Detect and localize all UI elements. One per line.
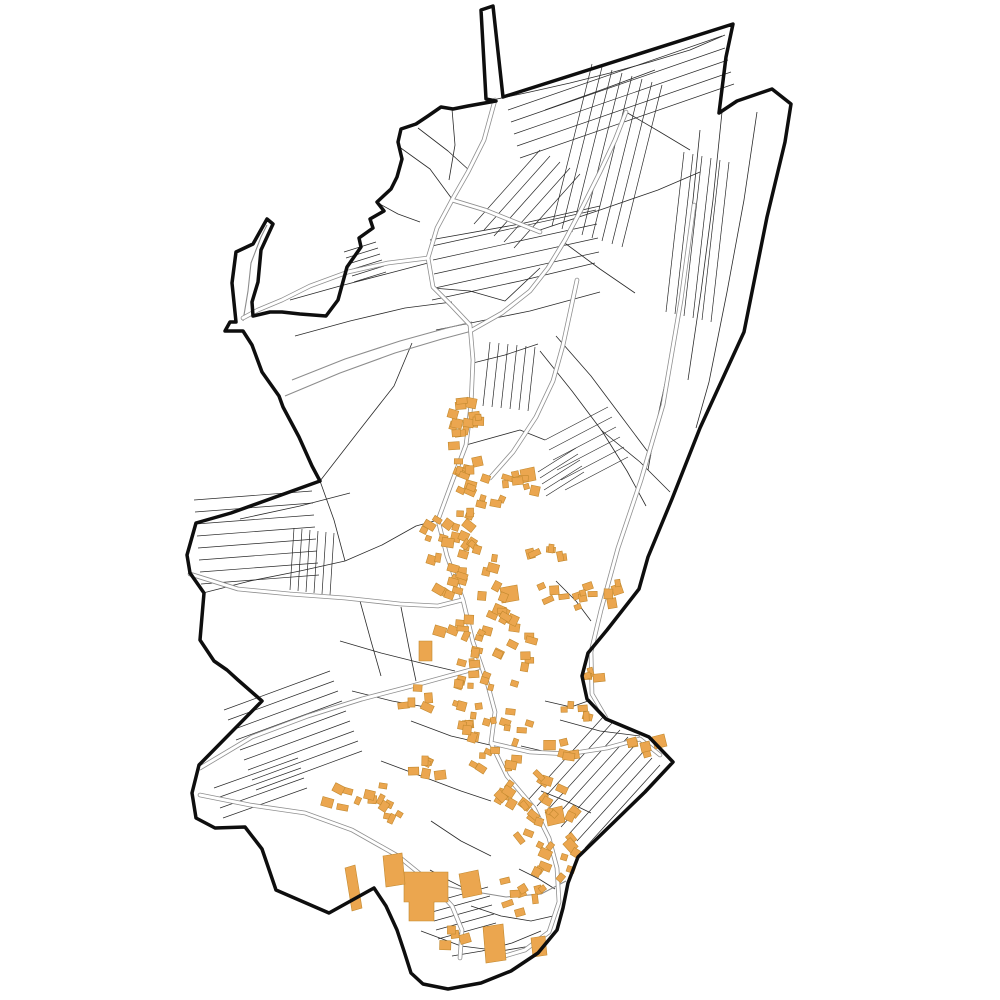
field-strip-line [582, 73, 622, 235]
building [548, 544, 554, 553]
field-strip-line [298, 529, 302, 591]
building [555, 784, 568, 795]
building [463, 418, 475, 428]
road-casing [190, 574, 462, 606]
building [529, 485, 540, 496]
field-strip-line [290, 528, 294, 590]
building [457, 626, 469, 632]
building [512, 477, 523, 486]
building [542, 595, 554, 604]
field-strip-line [194, 491, 312, 500]
field-strip-line [510, 345, 517, 409]
building [583, 712, 589, 722]
buildings-layer [321, 397, 667, 963]
building [413, 685, 422, 692]
building [479, 494, 486, 501]
building [447, 408, 459, 419]
field-strip-line [434, 238, 598, 274]
building [532, 894, 539, 904]
field-strip-line [240, 711, 346, 750]
field-strip-line [256, 751, 362, 790]
building [549, 586, 559, 595]
building [480, 474, 490, 484]
field-strip-line [354, 272, 386, 282]
field-strip-line [244, 721, 350, 760]
building [523, 483, 530, 490]
field-strip-line [198, 539, 316, 548]
parcel-line [471, 906, 553, 921]
building [461, 630, 471, 642]
road-surface [190, 574, 462, 606]
building [501, 899, 513, 908]
building [504, 725, 511, 731]
building [507, 639, 519, 650]
building [447, 926, 455, 934]
field-strip-line [546, 472, 584, 496]
field-strip-line [545, 407, 608, 440]
parcel-line [295, 302, 452, 336]
building [462, 519, 477, 533]
building [476, 500, 487, 509]
field-strip-line [538, 448, 576, 472]
parcel-line [398, 146, 452, 199]
building [490, 717, 496, 724]
building [500, 877, 511, 885]
building [579, 589, 586, 596]
building [467, 508, 474, 517]
track-line [292, 322, 472, 380]
field-strip-line [684, 156, 702, 316]
building [420, 701, 434, 713]
field-strip-line [585, 765, 660, 848]
building [395, 810, 403, 818]
building [468, 683, 474, 689]
building [408, 698, 415, 707]
field-strip-line [702, 160, 720, 320]
building [510, 680, 519, 688]
commune-boundary-layer [187, 6, 791, 989]
field-strip-line [542, 460, 580, 484]
building [502, 480, 508, 488]
map-viewport [0, 0, 1000, 1000]
building [560, 853, 568, 861]
field-strip-line [199, 551, 317, 560]
building [477, 591, 486, 600]
parcel-line [648, 130, 700, 470]
building [462, 725, 471, 735]
parcel-line [696, 112, 757, 428]
building [469, 671, 480, 678]
building [607, 598, 617, 609]
parcel-line [556, 336, 651, 456]
building [593, 673, 605, 682]
building [422, 756, 428, 766]
track-line [285, 331, 472, 396]
building [457, 549, 468, 559]
parcel-line [340, 641, 455, 671]
building [512, 738, 519, 747]
building [514, 908, 525, 918]
building [491, 554, 497, 562]
building [517, 727, 527, 733]
field-strip-line [434, 905, 492, 921]
building [520, 662, 529, 672]
building [465, 466, 474, 475]
field-strip-line [214, 758, 298, 788]
field-strip-line [544, 466, 582, 490]
building [424, 693, 433, 704]
building [521, 652, 531, 660]
field-strip-line [236, 701, 342, 740]
parcel-line [401, 607, 416, 681]
field-strip-line [569, 751, 644, 834]
field-strip-line [549, 417, 612, 450]
field-strip-line [314, 531, 318, 593]
parcel-line [601, 430, 670, 492]
field-strip-line [557, 437, 620, 470]
building [574, 603, 582, 610]
building [354, 796, 362, 805]
building [448, 442, 459, 450]
parcel-line [473, 344, 538, 363]
field-strip-line [248, 731, 354, 770]
building [544, 740, 556, 750]
building [383, 853, 405, 887]
field-strip-line [501, 344, 508, 408]
building [475, 414, 482, 421]
parcel-line [466, 430, 545, 445]
road-surface [472, 112, 626, 330]
building [523, 829, 534, 838]
building [454, 679, 463, 688]
building [561, 707, 567, 713]
building [433, 625, 447, 638]
building [588, 591, 597, 597]
parcel-line [432, 263, 595, 300]
building [321, 797, 334, 809]
building [510, 890, 520, 898]
building [421, 768, 431, 779]
field-strip-line [537, 723, 612, 806]
building [537, 582, 546, 590]
parcel-line [418, 128, 470, 171]
field-strip-line [492, 343, 499, 407]
field-strip-line [577, 758, 652, 841]
parcel-line [449, 109, 455, 180]
building [332, 783, 345, 796]
building [419, 641, 432, 661]
field-strip-line [224, 671, 330, 710]
building [559, 593, 570, 599]
building [435, 553, 442, 563]
field-strip-line [545, 730, 620, 813]
building [640, 741, 652, 753]
road-casing [472, 112, 626, 330]
building [483, 924, 506, 963]
building [336, 804, 348, 812]
building [556, 551, 564, 562]
field-strip-line [217, 768, 301, 798]
building [425, 535, 432, 542]
parcel-line [562, 241, 635, 293]
building [479, 753, 485, 759]
cadastral-map [0, 0, 1000, 1000]
building [408, 767, 419, 775]
building [434, 770, 446, 780]
field-strip-line [197, 527, 315, 536]
building [457, 659, 467, 667]
field-strip-line [483, 342, 490, 406]
building [567, 701, 573, 709]
field-strip-line [553, 427, 616, 460]
parcel-line [688, 112, 722, 380]
building [440, 940, 451, 949]
building [469, 660, 480, 668]
building [470, 712, 476, 719]
building [559, 738, 568, 746]
field-strip-line [561, 447, 624, 480]
building [615, 579, 621, 587]
field-strip-line [528, 347, 535, 411]
building [525, 720, 534, 728]
building [379, 783, 388, 789]
building [451, 418, 463, 429]
field-strip-line [252, 741, 358, 780]
building [578, 705, 588, 712]
building [490, 747, 499, 754]
building [456, 397, 467, 404]
building [482, 718, 490, 726]
parcel-line [431, 821, 491, 856]
building [471, 648, 480, 658]
field-strip-line [622, 85, 662, 247]
building [457, 511, 464, 517]
field-strip-line [346, 248, 378, 258]
building [452, 429, 461, 437]
parcel-line [320, 481, 345, 561]
building [525, 636, 538, 645]
building [464, 615, 474, 624]
building [363, 789, 375, 800]
building [441, 537, 454, 548]
parcel-line [360, 601, 381, 676]
building [505, 708, 515, 715]
building [562, 752, 575, 761]
building [475, 703, 483, 710]
building [404, 872, 448, 921]
building [604, 589, 613, 599]
building [488, 684, 494, 691]
field-strip-line [565, 457, 628, 490]
parcel-line [421, 931, 531, 951]
parcel-line [240, 493, 350, 519]
building [459, 870, 482, 898]
commune-boundary [187, 6, 791, 989]
field-strip-line [322, 532, 326, 594]
field-strip-line [519, 346, 526, 410]
building [454, 459, 463, 464]
field-strip-line [711, 162, 729, 322]
